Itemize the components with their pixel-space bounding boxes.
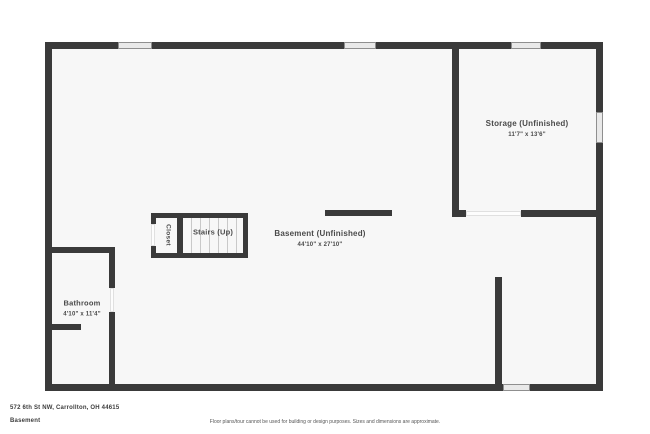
stairs-name: Stairs (Up) — [193, 228, 233, 236]
wall-stairs-bottom — [151, 253, 248, 258]
bathroom-room-label: Bathroom 4'10" x 11'4" — [63, 299, 101, 317]
wall-center-segment — [325, 210, 392, 216]
basement-room-name: Basement (Unfinished) — [274, 230, 365, 238]
bathroom-door-opening — [110, 288, 114, 312]
storage-room-name: Storage (Unfinished) — [486, 120, 569, 128]
wall-storage-bottom-left — [452, 210, 466, 217]
window-top-middle — [344, 42, 376, 49]
wall-closet-left-upper — [151, 213, 156, 224]
footer-disclaimer: Floor plans/tour cannot be used for buil… — [0, 419, 650, 425]
window-top-right — [511, 42, 541, 49]
basement-room-label: Basement (Unfinished) 44'10" x 27'10" — [274, 230, 365, 248]
stair-tread — [191, 218, 192, 253]
closet-label: Closet — [165, 224, 172, 246]
wall-bathroom-top — [45, 247, 115, 253]
floor-plan: Storage (Unfinished) 11'7" x 13'6" Basem… — [0, 0, 650, 400]
bathroom-room-dims: 4'10" x 11'4" — [63, 311, 101, 317]
wall-closet-left-lower — [151, 246, 156, 258]
wall-closet-divider — [177, 213, 183, 258]
storage-room-label: Storage (Unfinished) 11'7" x 13'6" — [486, 120, 569, 138]
wall-storage-left — [452, 42, 459, 217]
wall-stairs-right — [243, 213, 248, 258]
window-bottom-right — [503, 384, 530, 391]
bathroom-room-name: Bathroom — [63, 299, 101, 307]
window-right-storage — [596, 112, 603, 143]
window-top-left — [118, 42, 152, 49]
storage-room-dims: 11'7" x 13'6" — [486, 132, 569, 138]
wall-bathroom-stub — [45, 324, 81, 330]
floor-fill — [45, 42, 603, 391]
wall-outer-left — [45, 42, 52, 391]
basement-room-dims: 44'10" x 27'10" — [274, 242, 365, 248]
closet-door-opening — [151, 224, 155, 246]
footer: 572 6th St NW, Carrollton, OH 44615 Base… — [0, 400, 650, 434]
stairs-label: Stairs (Up) — [193, 228, 233, 236]
wall-bathroom-right-lower — [109, 312, 115, 391]
footer-address: 572 6th St NW, Carrollton, OH 44615 — [10, 405, 119, 411]
stair-tread — [236, 218, 237, 253]
storage-door-opening — [466, 211, 521, 216]
wall-storage-bottom-right — [521, 210, 603, 217]
wall-lower-right-partition — [495, 277, 502, 391]
wall-bathroom-right-upper — [109, 247, 115, 288]
